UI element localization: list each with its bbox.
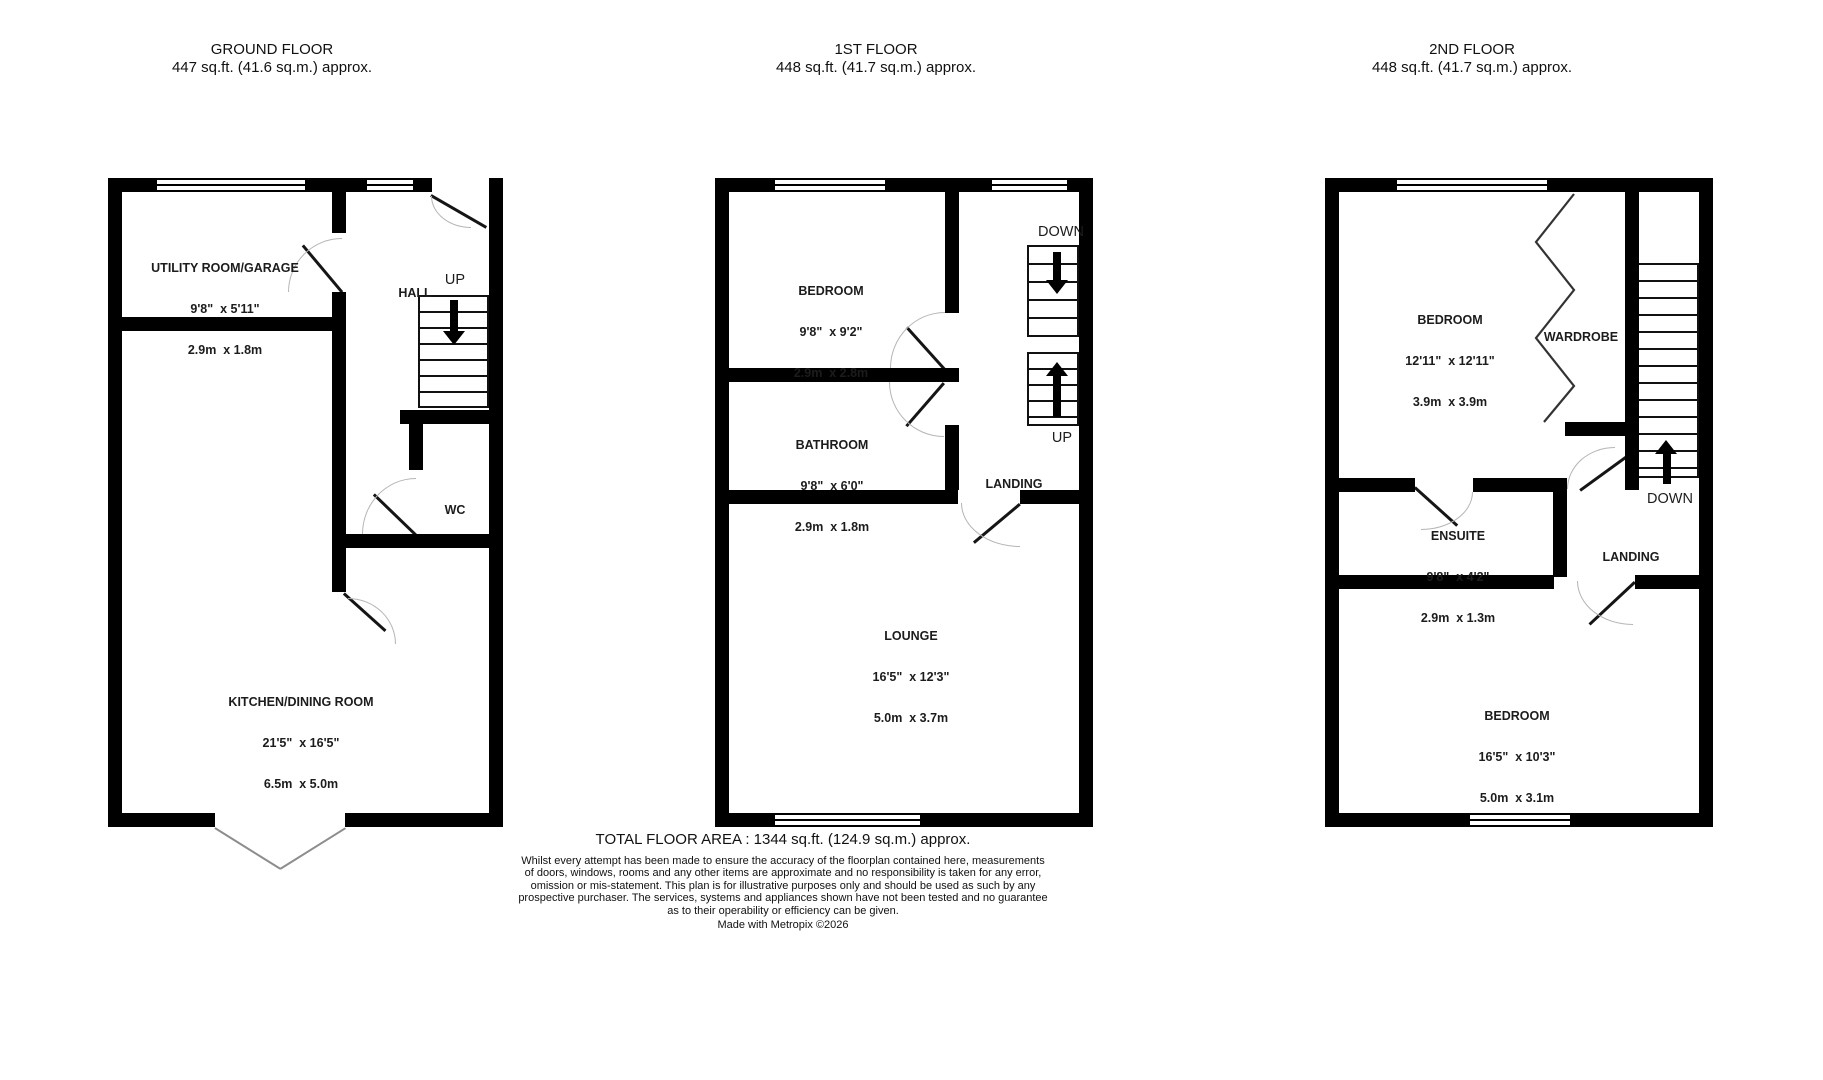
room-label-bedroom2: BEDROOM 16'5" x 10'3" 5.0m x 3.1m	[1479, 682, 1556, 834]
door-arc	[362, 478, 416, 534]
room-label-bedroom1: BEDROOM 12'11" x 12'11" 3.9m x 3.9m	[1405, 286, 1494, 438]
disclaimer-line: Whilst every attempt has been made to en…	[283, 855, 1283, 867]
stair-arrow-icon	[1053, 252, 1061, 280]
door-arc	[348, 598, 396, 644]
wall	[108, 178, 122, 827]
stairs-up-label: UP	[1052, 430, 1072, 446]
door-swing-line	[215, 827, 281, 869]
room-name: KITCHEN/DINING ROOM	[228, 696, 373, 710]
room-label-utility: UTILITY ROOM/GARAGE 9'8" x 5'11" 2.9m x …	[151, 234, 299, 386]
window	[992, 178, 1067, 192]
wall	[945, 192, 959, 313]
floor-title: 2ND FLOOR	[1312, 41, 1632, 59]
room-dim-m: 5.0m x 3.1m	[1479, 792, 1556, 806]
room-label-lounge: LOUNGE 16'5" x 12'3" 5.0m x 3.7m	[873, 602, 950, 754]
wall	[920, 813, 1093, 827]
disclaimer-line: of doors, windows, rooms and any other i…	[283, 867, 1283, 879]
room-name: ENSUITE	[1421, 530, 1495, 544]
wall	[1325, 178, 1339, 827]
room-label-wardrobe: WARDROBE	[1544, 303, 1618, 372]
wall	[400, 410, 489, 424]
arrow-up-icon	[1655, 440, 1677, 454]
room-dim-m: 6.5m x 5.0m	[228, 778, 373, 792]
wall	[409, 424, 423, 470]
wall	[885, 178, 992, 192]
wall	[332, 292, 346, 592]
room-name: BEDROOM	[1479, 710, 1556, 724]
room-dim-ft: 9'8" x 9'2"	[794, 326, 868, 340]
room-dim-ft: 21'5" x 16'5"	[228, 737, 373, 751]
stairs-down-label: DOWN	[1038, 224, 1084, 240]
door-arc	[890, 312, 945, 368]
room-label-kitchen: KITCHEN/DINING ROOM 21'5" x 16'5" 6.5m x…	[228, 668, 373, 820]
room-label-ensuite: ENSUITE 9'8" x 4'2" 2.9m x 1.3m	[1421, 502, 1495, 654]
wall	[346, 534, 489, 548]
stair-arrow-icon	[1053, 375, 1061, 417]
wall	[1699, 178, 1713, 827]
room-name: WARDROBE	[1544, 331, 1618, 345]
wall	[1473, 478, 1567, 492]
room-dim-m: 2.9m x 2.8m	[794, 367, 868, 381]
floor-area: 448 sq.ft. (41.7 sq.m.) approx.	[1312, 59, 1632, 77]
room-name: UTILITY ROOM/GARAGE	[151, 262, 299, 276]
window	[1397, 178, 1547, 192]
wall	[489, 178, 503, 827]
room-dim-m: 3.9m x 3.9m	[1405, 396, 1494, 410]
disclaimer-line: prospective purchaser. The services, sys…	[283, 892, 1283, 904]
wall	[1339, 478, 1415, 492]
floor-area: 448 sq.ft. (41.7 sq.m.) approx.	[716, 59, 1036, 77]
room-name: WC	[445, 504, 466, 518]
window	[157, 178, 305, 192]
room-label-wc: WC	[445, 476, 466, 545]
room-label-bedroom: BEDROOM 9'8" x 9'2" 2.9m x 2.8m	[794, 257, 868, 409]
arrow-down-icon	[443, 331, 465, 345]
room-label-bathroom: BATHROOM 9'8" x 6'0" 2.9m x 1.8m	[795, 411, 869, 563]
room-label-landing: LANDING	[986, 450, 1043, 519]
disclaimer-line: omission or mis-statement. This plan is …	[283, 880, 1283, 892]
room-dim-ft: 16'5" x 12'3"	[873, 671, 950, 685]
arrow-down-icon	[1046, 280, 1068, 294]
wall	[305, 178, 367, 192]
room-name: HALL	[398, 287, 431, 301]
wall	[1625, 192, 1639, 490]
room-label-landing: LANDING	[1603, 523, 1660, 592]
wall	[1547, 178, 1713, 192]
room-name: BEDROOM	[1405, 314, 1494, 328]
room-dim-ft: 16'5" x 10'3"	[1479, 751, 1556, 765]
arrow-up-icon	[1046, 362, 1068, 376]
floor-area: 447 sq.ft. (41.6 sq.m.) approx.	[112, 59, 432, 77]
room-dim-ft: 9'8" x 4'2"	[1421, 571, 1495, 585]
room-dim-ft: 9'8" x 5'11"	[151, 303, 299, 317]
wall	[332, 192, 346, 233]
room-dim-m: 5.0m x 3.7m	[873, 712, 950, 726]
total-floor-area: TOTAL FLOOR AREA : 1344 sq.ft. (124.9 sq…	[283, 831, 1283, 848]
wall	[945, 425, 959, 490]
room-dim-m: 2.9m x 1.8m	[795, 521, 869, 535]
wall	[715, 813, 775, 827]
footer: TOTAL FLOOR AREA : 1344 sq.ft. (124.9 sq…	[283, 831, 1283, 931]
wall	[1570, 813, 1713, 827]
stairs-down-label: DOWN	[1647, 491, 1693, 507]
door-arc	[1567, 447, 1615, 489]
wall	[1565, 422, 1625, 436]
room-dim-m: 2.9m x 1.8m	[151, 344, 299, 358]
wall	[108, 813, 215, 827]
stairs-up-label: UP	[445, 272, 465, 288]
stair-arrow-icon	[450, 300, 458, 332]
door-arc	[431, 196, 471, 228]
wall	[413, 178, 432, 192]
room-name: BATHROOM	[795, 439, 869, 453]
floor-title: GROUND FLOOR	[112, 41, 432, 59]
room-dim-ft: 9'8" x 6'0"	[795, 480, 869, 494]
room-label-hall: HALL	[398, 259, 431, 328]
window	[367, 178, 413, 192]
metropix-credit: Made with Metropix ©2026	[283, 919, 1283, 931]
wall	[715, 178, 729, 827]
floorplan-page: GROUND FLOOR 447 sq.ft. (41.6 sq.m.) app…	[0, 0, 1823, 1080]
stair-arrow-icon	[1663, 454, 1671, 484]
room-name: LANDING	[986, 478, 1043, 492]
room-dim-ft: 12'11" x 12'11"	[1405, 355, 1494, 369]
door-arc	[889, 382, 944, 437]
room-dim-m: 2.9m x 1.3m	[1421, 612, 1495, 626]
room-name: BEDROOM	[794, 285, 868, 299]
floor-title: 1ST FLOOR	[716, 41, 1036, 59]
window	[775, 813, 920, 827]
window	[775, 178, 885, 192]
room-name: LOUNGE	[873, 630, 950, 644]
wall	[1553, 492, 1567, 577]
wall	[1325, 813, 1470, 827]
room-name: LANDING	[1603, 551, 1660, 565]
ground-floor-title: GROUND FLOOR 447 sq.ft. (41.6 sq.m.) app…	[112, 41, 432, 76]
first-floor-title: 1ST FLOOR 448 sq.ft. (41.7 sq.m.) approx…	[716, 41, 1036, 76]
disclaimer-line: as to their operability or efficiency ca…	[283, 905, 1283, 917]
second-floor-title: 2ND FLOOR 448 sq.ft. (41.7 sq.m.) approx…	[1312, 41, 1632, 76]
